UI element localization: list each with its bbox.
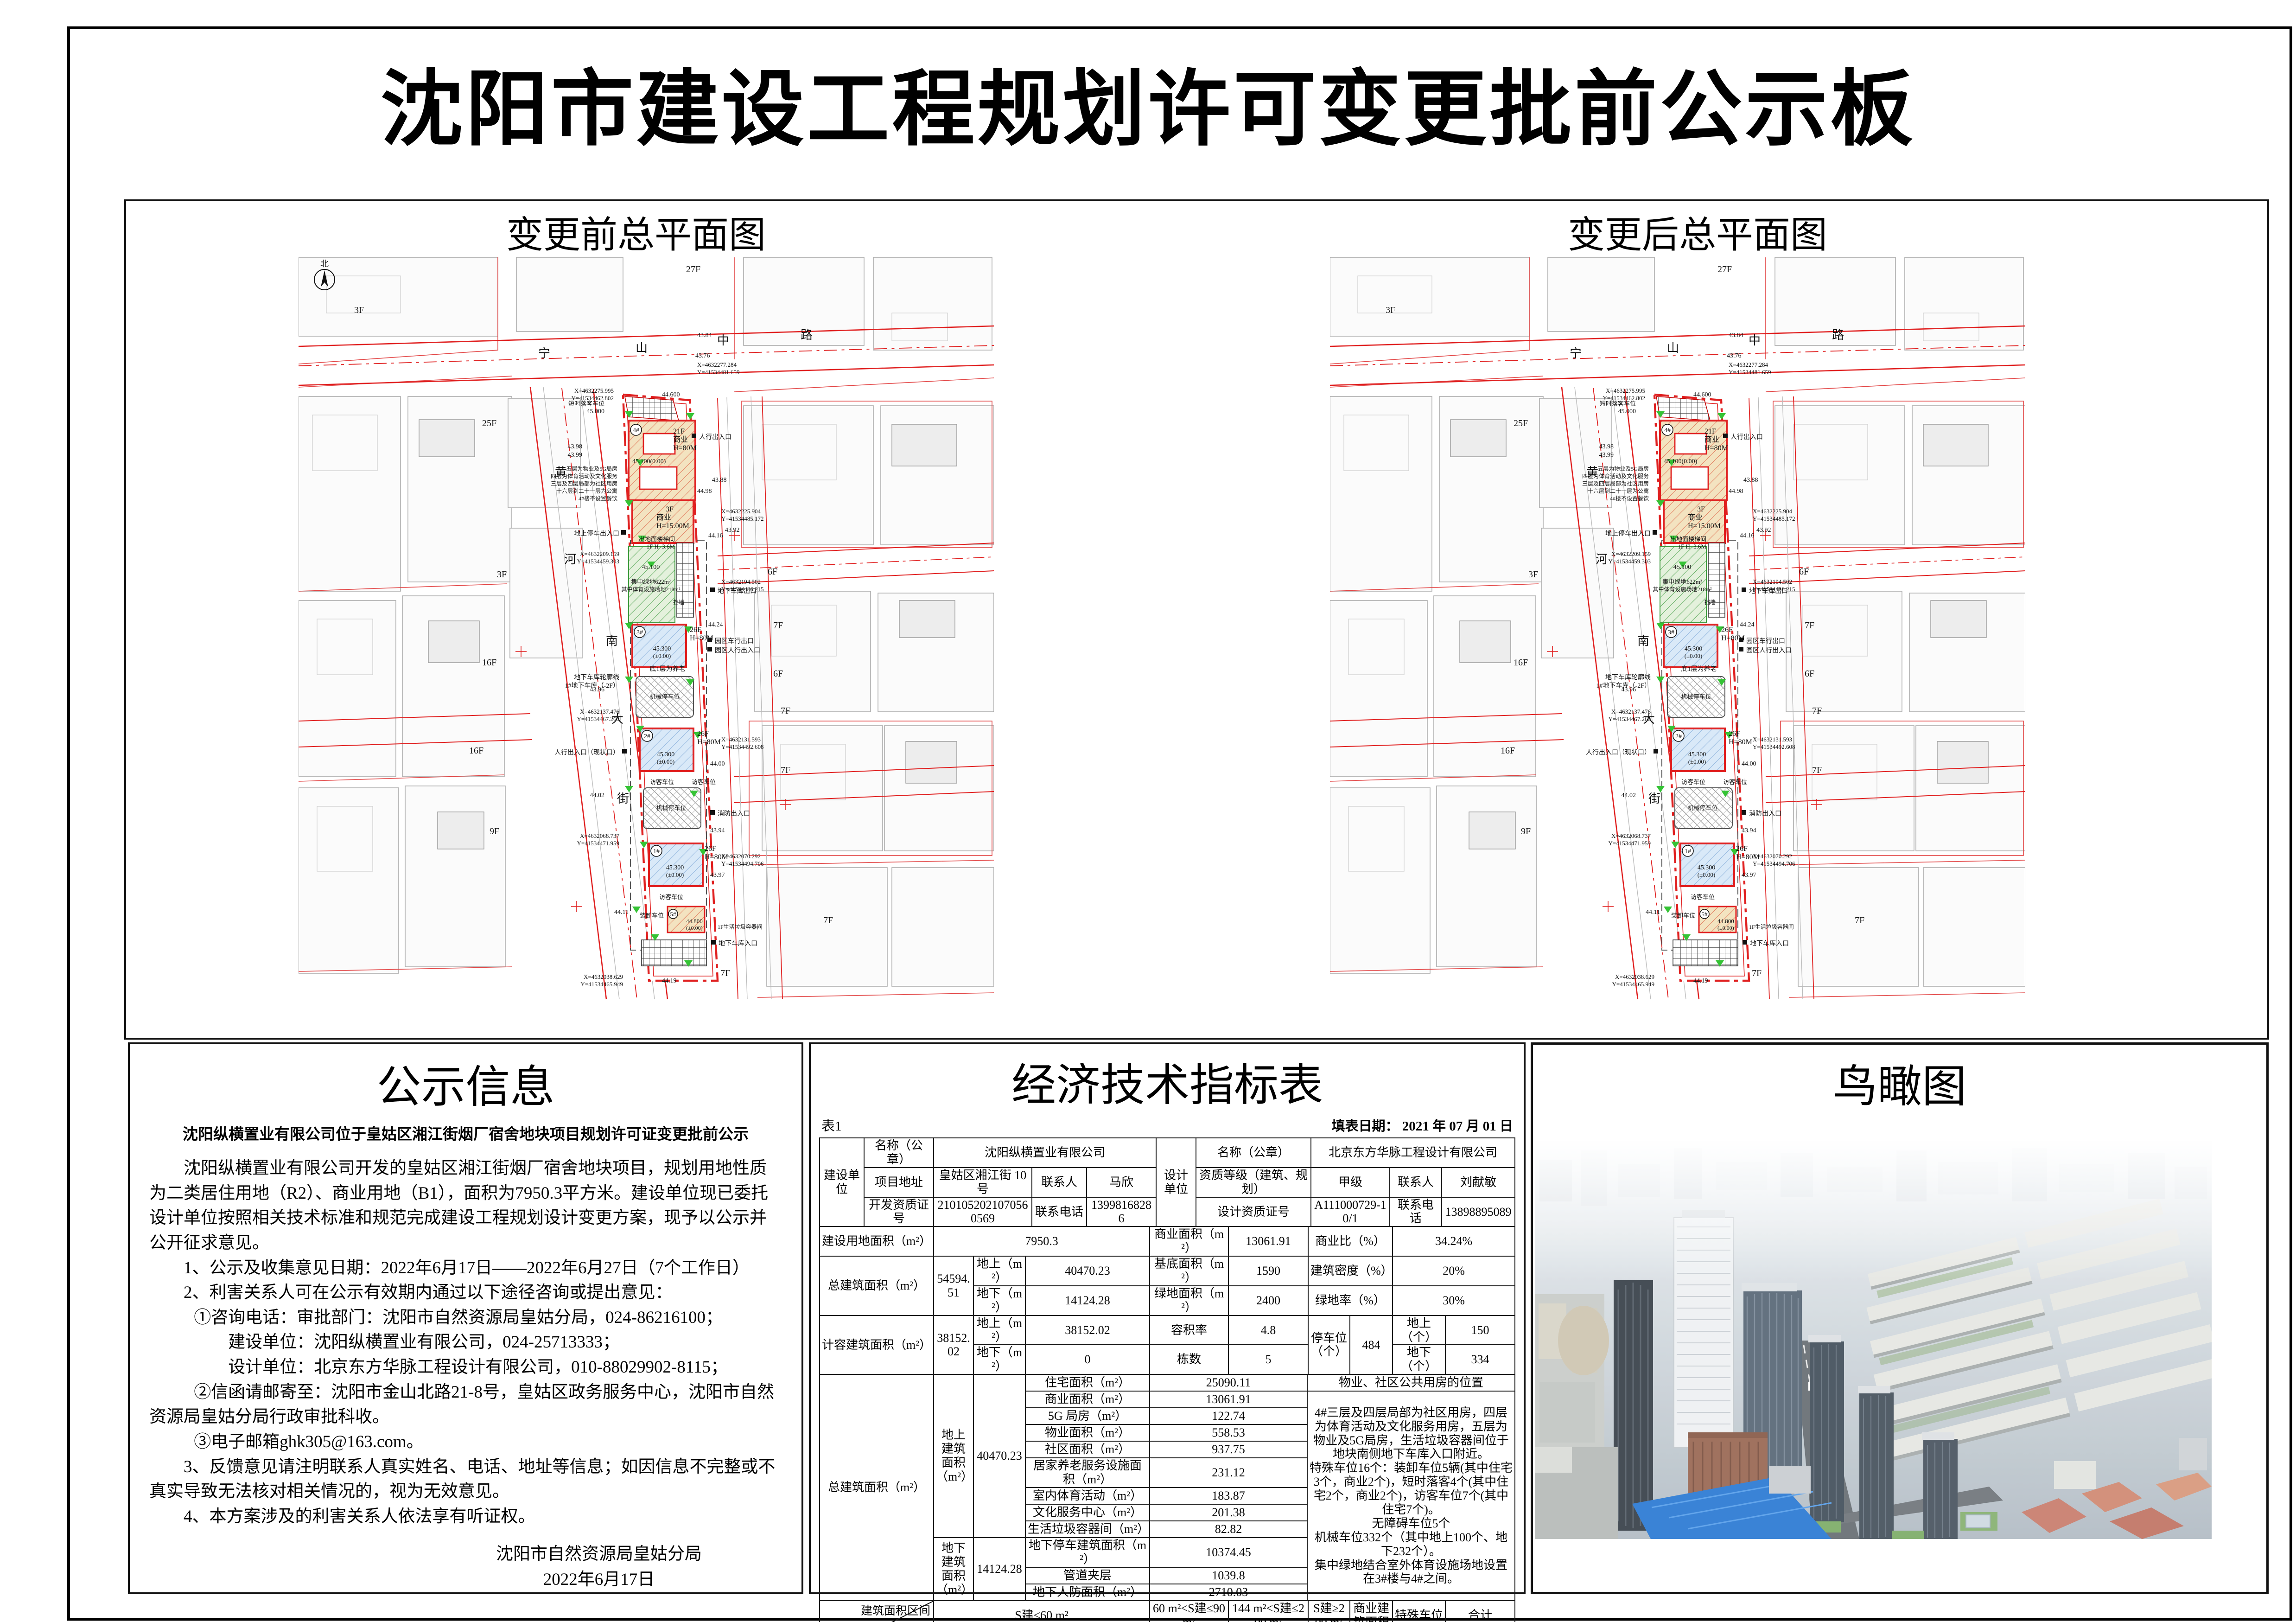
svg-text:27F: 27F [686, 264, 700, 275]
svg-text:Y=41534486.215: Y=41534486.215 [1753, 586, 1795, 593]
svg-text:7F: 7F [720, 968, 730, 978]
biz-area-label: 商业面积（m²） [1150, 1226, 1228, 1256]
parking-total: 484 [1350, 1315, 1393, 1375]
svg-text:X=4632275.995: X=4632275.995 [574, 387, 614, 394]
svg-text:3F: 3F [1386, 305, 1395, 315]
builder-phone-label: 联系电话 [1032, 1197, 1087, 1227]
svg-text:地上停车出入口: 地上停车出入口 [574, 530, 619, 537]
svg-text:3F: 3F [354, 305, 364, 315]
svg-text:45.300: 45.300 [1688, 751, 1706, 758]
item-value: 558.53 [1150, 1424, 1307, 1441]
green-area: 2400 [1228, 1286, 1308, 1315]
base-area-label: 基底面积（m²） [1150, 1256, 1228, 1286]
svg-text:1F生活垃圾容器间: 1F生活垃圾容器间 [718, 923, 763, 930]
svg-text:7F: 7F [1812, 706, 1822, 716]
parking-above-label: 地上（个） [1393, 1315, 1445, 1345]
svg-text:商业: 商业 [1705, 435, 1719, 444]
svg-text:4#楼不设置餐饮: 4#楼不设置餐饮 [579, 495, 617, 502]
designer-cert: A111000729-10/1 [1311, 1197, 1390, 1227]
col-header: 特殊车位 [1393, 1601, 1445, 1622]
svg-text:3F: 3F [1697, 505, 1705, 513]
svg-text:45.300: 45.300 [657, 751, 675, 758]
svg-text:中: 中 [717, 334, 729, 347]
birdseye-title: 鸟瞰图 [1533, 1050, 2266, 1115]
item-value: 122.74 [1150, 1408, 1307, 1424]
svg-text:X=4632194.502: X=4632194.502 [1753, 578, 1792, 585]
cap-below-label: 地下（m²） [973, 1345, 1025, 1374]
svg-text:底1层为养老: 底1层为养老 [650, 665, 686, 673]
item-label: 管道夹层 [1025, 1567, 1150, 1584]
indicators-title: 经济技术指标表 [811, 1049, 1524, 1113]
svg-text:访客车位: 访客车位 [1691, 894, 1715, 900]
svg-text:7F: 7F [781, 765, 790, 775]
svg-text:宁: 宁 [1570, 347, 1582, 360]
svg-text:X=4632038.629: X=4632038.629 [584, 973, 623, 980]
svg-text:44.24: 44.24 [708, 621, 723, 628]
svg-text:挡墙: 挡墙 [1705, 599, 1716, 606]
col-header: 60 m²<S建≤90 m² [1150, 1601, 1228, 1622]
svg-text:5#: 5# [670, 911, 677, 918]
above-gfa: 40470.23 [1025, 1256, 1150, 1286]
biz-ratio: 34.24% [1393, 1226, 1515, 1256]
builder-addr: 皇姑区湘江街 10 号 [934, 1168, 1032, 1197]
svg-text:H=80M: H=80M [690, 634, 713, 642]
svg-text:X=4632194.502: X=4632194.502 [721, 578, 761, 585]
svg-text:Y=41534467.260: Y=41534467.260 [1609, 715, 1651, 722]
svg-text:十六层到二十一层为公寓: 十六层到二十一层为公寓 [1588, 487, 1649, 494]
svg-text:(±0.00): (±0.00) [657, 758, 675, 765]
dropoff-area [625, 396, 679, 421]
svg-text:X=4632131.593: X=4632131.593 [1753, 736, 1792, 743]
notice-item-4: 4、本方案涉及的利害关系人依法享有听证权。 [149, 1504, 782, 1529]
svg-text:出地面楼梯间: 出地面楼梯间 [639, 536, 675, 543]
svg-text:6F: 6F [773, 669, 783, 679]
svg-text:43.96: 43.96 [1622, 686, 1636, 693]
svg-text:1F H=3.6M: 1F H=3.6M [1678, 543, 1706, 550]
svg-text:1F生活垃圾容器间: 1F生活垃圾容器间 [1749, 923, 1794, 930]
svg-text:44.98: 44.98 [697, 488, 712, 495]
svg-text:43.84: 43.84 [1729, 332, 1743, 339]
svg-text:3F: 3F [497, 569, 507, 580]
item-label: 住宅面积（m²） [1025, 1374, 1150, 1391]
svg-text:44.600: 44.600 [1693, 391, 1711, 398]
biz-area: 13061.91 [1228, 1226, 1308, 1256]
household-parking-table: 建筑面积区间 住宅户数 S建≤60 m² 60 m²<S建≤90 m² 144 … [819, 1600, 1515, 1622]
svg-text:43.99: 43.99 [568, 452, 583, 459]
item-label: 5G 局房（m²） [1025, 1408, 1150, 1424]
svg-text:路: 路 [1832, 328, 1844, 342]
plan-drawing-before: 北 宁 山 中 路 黄 河 南 大 街 27F25F 3F16F [299, 257, 994, 1032]
svg-text:四层为体育活动及文化服务: 四层为体育活动及文化服务 [1582, 473, 1649, 479]
svg-text:7F: 7F [1855, 915, 1864, 926]
svg-text:H=80M: H=80M [1729, 738, 1752, 746]
plan-after-label: 变更后总平面图 [1327, 205, 2068, 259]
svg-text:X=4632225.904: X=4632225.904 [721, 508, 761, 515]
svg-text:Y=41534494.706: Y=41534494.706 [721, 860, 764, 867]
svg-text:6F: 6F [1799, 567, 1809, 577]
svg-text:Y=41534467.260: Y=41534467.260 [577, 715, 619, 722]
svg-text:X=4632038.629: X=4632038.629 [1615, 973, 1654, 980]
svg-text:44.19: 44.19 [1693, 977, 1708, 984]
cap-below: 0 [1025, 1345, 1150, 1374]
svg-text:7F: 7F [773, 620, 783, 631]
svg-text:44.02: 44.02 [590, 792, 605, 799]
svg-text:其中体育设施场地218m²: 其中体育设施场地218m² [1653, 586, 1712, 593]
svg-text:河: 河 [564, 553, 576, 566]
svg-text:1F H=3.6M: 1F H=3.6M [646, 543, 675, 550]
svg-text:园区人行出入口: 园区人行出入口 [1746, 647, 1792, 654]
far: 4.8 [1228, 1315, 1308, 1345]
svg-text:Y=41534485.172: Y=41534485.172 [721, 515, 763, 522]
svg-text:地上停车出入口: 地上停车出入口 [1605, 530, 1651, 537]
svg-text:43.94: 43.94 [1742, 827, 1756, 834]
notice-subtitle: 沈阳纵横置业有限公司位于皇姑区湘江街烟厂宿舍地块项目规划许可证变更批前公示 [149, 1122, 782, 1144]
land-area: 7950.3 [934, 1226, 1150, 1256]
plan-before-label: 变更前总平面图 [265, 205, 1007, 259]
svg-text:26F: 26F [697, 730, 709, 738]
parking-label: 停车位（个） [1308, 1315, 1350, 1375]
above-group-total: 40470.23 [973, 1374, 1025, 1538]
svg-text:南: 南 [606, 634, 618, 648]
svg-text:(±0.00): (±0.00) [653, 652, 671, 659]
stair-strip [1708, 543, 1725, 617]
svg-text:26F: 26F [690, 626, 701, 634]
svg-text:43.92: 43.92 [725, 527, 740, 534]
svg-text:3#: 3# [636, 629, 643, 636]
item-value: 201.38 [1150, 1504, 1307, 1521]
builder-contact: 马欣 [1087, 1168, 1156, 1197]
svg-text:45.100(0.00): 45.100(0.00) [1664, 458, 1698, 465]
signature-agency: 沈阳市自然资源局皇姑分局 [409, 1541, 789, 1567]
building-4-footprint [643, 434, 675, 454]
item-label: 居家养老服务设施面积（m²） [1025, 1458, 1150, 1488]
svg-text:4#楼不设置餐饮: 4#楼不设置餐饮 [1610, 495, 1649, 502]
notice-paragraph: 沈阳纵横置业有限公司开发的皇姑区湘江街烟厂宿舍地块项目，规划用地性质为二类居住用… [149, 1156, 782, 1256]
item-label: 地下人防面积（m²） [1025, 1584, 1150, 1601]
svg-text:其中体育设施场地218m²: 其中体育设施场地218m² [622, 586, 681, 593]
svg-text:25F: 25F [1514, 418, 1528, 428]
land-area-label: 建设用地面积（m²） [820, 1226, 934, 1256]
item-label: 文化服务中心（m²） [1025, 1504, 1150, 1521]
svg-text:Y=41534465.949: Y=41534465.949 [1612, 981, 1654, 988]
col-header: 144 m²<S建≤200 m² [1228, 1601, 1308, 1622]
item-value: 2710.03 [1150, 1584, 1307, 1601]
svg-text:山: 山 [1667, 341, 1679, 355]
col-header: 商业建筑面积 [1350, 1601, 1393, 1622]
below-gfa: 14124.28 [1025, 1286, 1150, 1315]
notice-body: 沈阳纵横置业有限公司开发的皇姑区湘江街烟厂宿舍地块项目，规划用地性质为二类居住用… [149, 1156, 782, 1529]
blocks: 5 [1228, 1345, 1308, 1374]
page-title: 沈阳市建设工程规划许可变更批前公示板 [0, 43, 2296, 162]
svg-text:(±0.00): (±0.00) [666, 871, 684, 878]
svg-text:H=80M: H=80M [673, 444, 697, 452]
svg-text:X=4632137.476: X=4632137.476 [580, 708, 619, 715]
svg-text:H=15.00M: H=15.00M [656, 522, 689, 530]
diagonal-header: 建筑面积区间 住宅户数 [820, 1601, 934, 1622]
notice-title: 公示信息 [149, 1051, 782, 1115]
above-label: 地上（m²） [973, 1256, 1025, 1286]
svg-text:H=80M: H=80M [697, 738, 721, 746]
svg-text:16F: 16F [1501, 746, 1515, 756]
designer-role: 设计单位 [1156, 1138, 1196, 1226]
svg-text:访客车位: 访客车位 [1723, 779, 1747, 785]
svg-text:X=4632275.995: X=4632275.995 [1606, 387, 1645, 394]
notice-item-3: 3、反馈意见请注明联系人真实姓名、电话、地址等信息；如因信息不完整或不真实导致无… [149, 1455, 782, 1504]
svg-text:(±0.00): (±0.00) [1688, 758, 1706, 765]
svg-text:44.24: 44.24 [1740, 621, 1755, 628]
designer-contact-label: 联系人 [1390, 1168, 1442, 1197]
notice-board-page: 沈阳市建设工程规划许可变更批前公示板 变更前总平面图 变更后总平面图 [0, 0, 2296, 1622]
svg-text:27F: 27F [1717, 264, 1732, 275]
svg-text:16F: 16F [482, 658, 496, 668]
svg-text:5#: 5# [1702, 911, 1708, 918]
svg-text:X=4632068.737: X=4632068.737 [580, 832, 619, 839]
svg-text:21F: 21F [673, 428, 685, 435]
diag-top-label: 建筑面积区间 [861, 1605, 930, 1618]
builder-name: 沈阳纵横置业有限公司 [934, 1138, 1156, 1168]
item-label: 物业面积（m²） [1025, 1424, 1150, 1441]
svg-text:街: 街 [617, 792, 629, 805]
svg-text:9F: 9F [490, 826, 499, 837]
designer-contact: 刘献敏 [1442, 1168, 1515, 1197]
item-value: 937.75 [1150, 1441, 1307, 1458]
item-value: 231.12 [1150, 1458, 1307, 1488]
svg-text:人行出入口（现状口）: 人行出入口（现状口） [1586, 749, 1651, 756]
notice-info-panel: 公示信息 沈阳纵横置业有限公司位于皇姑区湘江街烟厂宿舍地块项目规划许可证变更批前… [128, 1042, 803, 1594]
builder-phone: 13998168286 [1087, 1197, 1156, 1227]
svg-text:机械停车位: 机械停车位 [649, 693, 680, 700]
svg-text:44.19: 44.19 [662, 977, 677, 984]
svg-text:4#: 4# [633, 427, 639, 434]
notice-item-2: 2、利害关系人可在公示有效期内通过以下途径咨询或提出意见： [149, 1280, 782, 1305]
svg-text:地下车库入口: 地下车库入口 [719, 939, 757, 947]
item-value: 82.82 [1150, 1521, 1307, 1538]
svg-text:(±0.00): (±0.00) [1698, 871, 1716, 878]
col-header: S建≥200 m² [1308, 1601, 1350, 1622]
svg-text:X=4632070.292: X=4632070.292 [1753, 853, 1792, 860]
svg-text:43.88: 43.88 [712, 477, 727, 484]
col-header: 合计 [1445, 1601, 1515, 1622]
svg-text:45.300: 45.300 [666, 864, 684, 871]
svg-text:机械停车位: 机械停车位 [656, 805, 686, 811]
svg-text:16F: 16F [469, 746, 483, 756]
builder-cert-label: 开发资质证号 [864, 1197, 934, 1227]
gfa-breakdown-table: 总建筑面积（m²） 地上建筑面积（m²） 40470.23 住宅面积（m²） 2… [819, 1374, 1515, 1601]
svg-text:三层及四层局部为社区用房: 三层及四层局部为社区用房 [1582, 480, 1649, 487]
svg-text:五层为物业及5G局房: 五层为物业及5G局房 [566, 465, 617, 472]
svg-text:Y=41534481.659: Y=41534481.659 [1729, 369, 1771, 376]
svg-text:消防出入口: 消防出入口 [1749, 810, 1781, 817]
svg-text:路: 路 [801, 328, 813, 342]
svg-text:44.600: 44.600 [662, 391, 680, 398]
svg-text:44.16: 44.16 [1740, 532, 1755, 539]
svg-text:44.16: 44.16 [708, 532, 723, 539]
svg-text:商业: 商业 [673, 435, 688, 444]
svg-text:7F: 7F [1805, 620, 1814, 631]
breakdown-note: 4#三层及四层局部为社区用房，四层为体育活动及文化服务用房，五层为物业及5G局房… [1307, 1391, 1515, 1601]
north-label: 北 [320, 259, 329, 268]
svg-text:43.97: 43.97 [1742, 872, 1756, 879]
parking-below: 334 [1445, 1345, 1515, 1374]
svg-text:43.76: 43.76 [1727, 352, 1742, 359]
svg-text:43.99: 43.99 [1599, 452, 1614, 459]
note-header: 物业、社区公共用房的位置 [1307, 1374, 1515, 1391]
svg-text:X=4632131.593: X=4632131.593 [721, 736, 761, 743]
designer-grade-label: 资质等级（建筑、规划） [1196, 1168, 1311, 1197]
plan-drawing-after: 北 宁 山 中 路 黄 河 南 大 街 27F25F 3F16F [1330, 257, 2025, 1032]
svg-text:16F: 16F [1514, 658, 1528, 668]
svg-text:X=4632137.476: X=4632137.476 [1611, 708, 1651, 715]
svg-text:Y=41534481.659: Y=41534481.659 [697, 369, 739, 376]
svg-text:43.98: 43.98 [568, 443, 583, 450]
svg-text:1#: 1# [1685, 848, 1691, 855]
table-meta: 表1 填表日期： 2021 年 07 月 01 日 [820, 1116, 1515, 1135]
building-4-footprint [1675, 434, 1706, 454]
svg-text:H=80M: H=80M [1705, 444, 1728, 452]
blocks-label: 栋数 [1150, 1345, 1228, 1374]
builder-role: 建设单位 [820, 1138, 864, 1226]
birdseye-render [1535, 1141, 2212, 1539]
notice-item-2a: ①咨询电话：审批部门：沈阳市自然资源局皇姑分局，024-86216100； [149, 1305, 782, 1330]
density-label: 建筑密度（%） [1308, 1256, 1393, 1286]
bottom-grid-area [1673, 940, 1738, 966]
notice-item-2b: 建设单位：沈阳纵横置业有限公司，024-25713333； [149, 1330, 782, 1355]
parking-above: 150 [1445, 1315, 1515, 1345]
svg-text:山: 山 [636, 341, 648, 355]
item-value: 13061.91 [1150, 1391, 1307, 1408]
builder-cert: 2101052021070560569 [934, 1197, 1032, 1227]
svg-text:Y=41534471.959: Y=41534471.959 [1609, 840, 1651, 847]
svg-text:机械停车位: 机械停车位 [1687, 805, 1717, 811]
svg-text:Y=41534485.172: Y=41534485.172 [1753, 515, 1795, 522]
svg-text:商业: 商业 [656, 513, 671, 522]
dropoff-area [1656, 396, 1710, 421]
svg-text:Y=41534465.949: Y=41534465.949 [581, 981, 623, 988]
table-tag: 表1 [821, 1115, 842, 1135]
svg-text:出地面楼梯间: 出地面楼梯间 [1670, 536, 1706, 543]
svg-text:45.100: 45.100 [1673, 564, 1692, 571]
designer-phone: 13898895089 [1442, 1197, 1515, 1227]
stair-strip [677, 543, 693, 617]
site-plans-panel: 变更前总平面图 变更后总平面图 [124, 199, 2269, 1040]
svg-text:44.00: 44.00 [710, 760, 725, 767]
item-label: 室内体育活动（m²） [1025, 1488, 1150, 1504]
svg-text:H=80M: H=80M [1721, 634, 1745, 642]
birdseye-photo [1535, 1141, 2212, 1539]
notice-item-2e: ③电子邮箱ghk305@163.com。 [149, 1430, 782, 1455]
svg-text:43.84: 43.84 [697, 332, 712, 339]
svg-text:X=4632277.284: X=4632277.284 [1729, 361, 1768, 368]
designer-phone-label: 联系电话 [1390, 1197, 1442, 1227]
svg-text:3#: 3# [1668, 629, 1674, 636]
item-value: 183.87 [1150, 1488, 1307, 1504]
svg-text:7F: 7F [1812, 765, 1822, 775]
svg-text:45.000: 45.000 [587, 408, 605, 415]
cap-gfa: 38152.02 [934, 1315, 973, 1375]
svg-text:Y=41534459.303: Y=41534459.303 [1609, 558, 1651, 565]
svg-text:装卸车位: 装卸车位 [1671, 912, 1695, 919]
svg-text:底1层为养老: 底1层为养老 [1681, 665, 1717, 673]
signature-date: 2022年6月17日 [409, 1567, 789, 1593]
far-label: 容积率 [1150, 1315, 1228, 1345]
svg-text:四层为体育活动及文化服务: 四层为体育活动及文化服务 [551, 473, 617, 479]
svg-text:X=4632209.159: X=4632209.159 [580, 550, 619, 557]
item-label: 社区面积（m²） [1025, 1441, 1150, 1458]
svg-text:挡墙: 挡墙 [673, 599, 684, 606]
svg-text:三层及四层局部为社区用房: 三层及四层局部为社区用房 [551, 480, 617, 487]
building-4-footprint [640, 467, 677, 489]
bottom-grid-area [642, 940, 706, 966]
svg-text:地下车库轮廓线: 地下车库轮廓线 [574, 673, 619, 681]
svg-text:45.300: 45.300 [1698, 864, 1716, 871]
svg-text:河: 河 [1596, 553, 1608, 566]
svg-text:机械停车位: 机械停车位 [1681, 693, 1711, 700]
svg-text:43.97: 43.97 [710, 872, 725, 879]
svg-text:十六层到二十一层为公寓: 十六层到二十一层为公寓 [556, 487, 617, 494]
above-group-label: 地上建筑面积（m²） [934, 1374, 973, 1538]
svg-text:宁: 宁 [538, 347, 550, 360]
svg-text:X=4632070.292: X=4632070.292 [721, 853, 761, 860]
cap-gfa-label: 计容建筑面积（m²） [820, 1315, 934, 1375]
svg-text:6F: 6F [1805, 669, 1814, 679]
svg-text:44.00: 44.00 [1742, 760, 1756, 767]
svg-text:26F: 26F [1729, 730, 1740, 738]
item-value: 1039.8 [1150, 1567, 1307, 1584]
notice-item-1: 1、公示及收集意见日期：2022年6月17日——2022年6月27日（7个工作日… [149, 1256, 782, 1281]
designer-cert-label: 设计资质证号 [1196, 1197, 1311, 1227]
svg-text:X=4632068.737: X=4632068.737 [1611, 832, 1651, 839]
svg-text:43.94: 43.94 [710, 827, 725, 834]
cap-above-label: 地上（m²） [973, 1315, 1025, 1345]
svg-text:44.98: 44.98 [1729, 488, 1743, 495]
site-plan-svg: 北 宁 山 中 路 黄 河 南 大 街 27F25F 3F16F [299, 257, 994, 1032]
designer-name: 北京东方华脉工程设计有限公司 [1311, 1138, 1515, 1168]
base-area: 1590 [1228, 1256, 1308, 1286]
item-label: 商业面积（m²） [1025, 1391, 1150, 1408]
svg-text:园区车行出口: 园区车行出口 [1746, 637, 1785, 645]
table-date: 填表日期： 2021 年 07 月 01 日 [1331, 1115, 1513, 1135]
svg-text:9F: 9F [1521, 826, 1531, 837]
col-header: S建≤60 m² [934, 1601, 1150, 1622]
svg-text:五层为物业及5G局房: 五层为物业及5G局房 [1597, 465, 1649, 472]
svg-text:X=4632209.159: X=4632209.159 [1611, 550, 1651, 557]
item-value: 10374.45 [1150, 1538, 1307, 1567]
svg-text:44.11: 44.11 [1646, 909, 1660, 916]
svg-text:7F: 7F [823, 915, 833, 926]
svg-text:26F: 26F [705, 845, 716, 853]
svg-text:人行出入口（现状口）: 人行出入口（现状口） [554, 749, 619, 756]
svg-text:7F: 7F [781, 706, 790, 716]
svg-text:44.800: 44.800 [686, 918, 703, 925]
svg-text:3F: 3F [666, 505, 674, 513]
svg-text:南: 南 [1637, 634, 1649, 648]
svg-text:43.92: 43.92 [1756, 527, 1771, 534]
svg-text:44.11: 44.11 [614, 909, 629, 916]
svg-text:26F: 26F [1736, 845, 1748, 853]
designer-grade: 甲级 [1311, 1168, 1390, 1197]
below-group-total: 14124.28 [973, 1538, 1025, 1601]
green-area-label: 绿地面积（m²） [1150, 1286, 1228, 1315]
item-label: 地下停车建筑面积（m²） [1025, 1538, 1150, 1567]
below-label: 地下（m²） [973, 1286, 1025, 1315]
svg-text:44.800: 44.800 [1717, 918, 1734, 925]
svg-text:7F: 7F [1752, 968, 1762, 978]
total-gfa: 54594.51 [934, 1256, 973, 1315]
svg-text:6F: 6F [768, 567, 777, 577]
svg-text:26F: 26F [1721, 626, 1733, 634]
svg-text:Y=41534492.608: Y=41534492.608 [1753, 743, 1795, 750]
svg-text:43.96: 43.96 [590, 686, 605, 693]
